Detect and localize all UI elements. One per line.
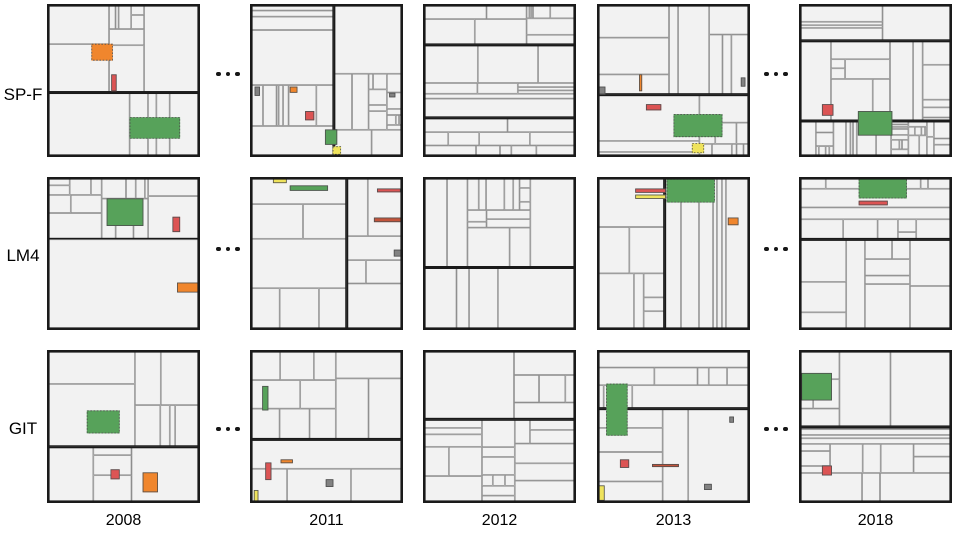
treemap-lm4-2013: [597, 177, 750, 330]
omitted-years-ellipsis-right-git: [761, 424, 791, 434]
omitted-years-ellipsis-right-lm4: [761, 244, 791, 254]
ellipsis-dot: [216, 72, 221, 77]
treemap-canvas: [423, 177, 576, 330]
treemap-spf-2012: [423, 4, 576, 157]
row-label-git: GIT: [0, 419, 46, 439]
treemap-git-2011: [250, 350, 403, 503]
ellipsis-dot: [783, 247, 788, 252]
treemap-canvas: [47, 350, 200, 503]
omitted-years-ellipsis-left-spf: [213, 69, 243, 79]
ellipsis-dot: [235, 72, 240, 77]
ellipsis-dot: [235, 247, 240, 252]
treemap-canvas: [597, 177, 750, 330]
ellipsis-dot: [764, 72, 769, 77]
treemap-canvas: [799, 4, 952, 157]
ellipsis-dot: [216, 247, 221, 252]
treemap-canvas: [47, 4, 200, 157]
ellipsis-dot: [774, 72, 779, 77]
ellipsis-dot: [783, 72, 788, 77]
treemap-canvas: [799, 350, 952, 503]
treemap-git-2012: [423, 350, 576, 503]
treemap-lm4-2018: [799, 177, 952, 330]
omitted-years-ellipsis-left-lm4: [213, 244, 243, 254]
year-label-2011: 2011: [250, 511, 403, 531]
treemap-spf-2008: [47, 4, 200, 157]
treemap-canvas: [250, 350, 403, 503]
treemap-canvas: [423, 350, 576, 503]
omitted-years-ellipsis-right-spf: [761, 69, 791, 79]
row-label-spf: SP-F: [0, 85, 46, 105]
ellipsis-dot: [774, 247, 779, 252]
ellipsis-dot: [783, 427, 788, 432]
year-label-2018: 2018: [799, 511, 952, 531]
year-label-2012: 2012: [423, 511, 576, 531]
treemap-git-2013: [597, 350, 750, 503]
treemap-spf-2018: [799, 4, 952, 157]
treemap-canvas: [250, 177, 403, 330]
year-label-2013: 2013: [597, 511, 750, 531]
treemap-canvas: [799, 177, 952, 330]
ellipsis-dot: [764, 427, 769, 432]
ellipsis-dot: [226, 427, 231, 432]
treemap-lm4-2011: [250, 177, 403, 330]
ellipsis-dot: [226, 247, 231, 252]
ellipsis-dot: [764, 247, 769, 252]
treemap-git-2008: [47, 350, 200, 503]
treemap-canvas: [423, 4, 576, 157]
year-label-2008: 2008: [47, 511, 200, 531]
treemap-lm4-2008: [47, 177, 200, 330]
treemap-canvas: [47, 177, 200, 330]
ellipsis-dot: [235, 427, 240, 432]
ellipsis-dot: [226, 72, 231, 77]
treemap-evolution-figure: SP-FLM4GIT20082011201220132018: [0, 0, 960, 534]
row-label-lm4: LM4: [0, 246, 46, 266]
treemap-canvas: [250, 4, 403, 157]
treemap-spf-2013: [597, 4, 750, 157]
omitted-years-ellipsis-left-git: [213, 424, 243, 434]
treemap-spf-2011: [250, 4, 403, 157]
treemap-git-2018: [799, 350, 952, 503]
treemap-lm4-2012: [423, 177, 576, 330]
ellipsis-dot: [774, 427, 779, 432]
treemap-canvas: [597, 4, 750, 157]
ellipsis-dot: [216, 427, 221, 432]
treemap-canvas: [597, 350, 750, 503]
